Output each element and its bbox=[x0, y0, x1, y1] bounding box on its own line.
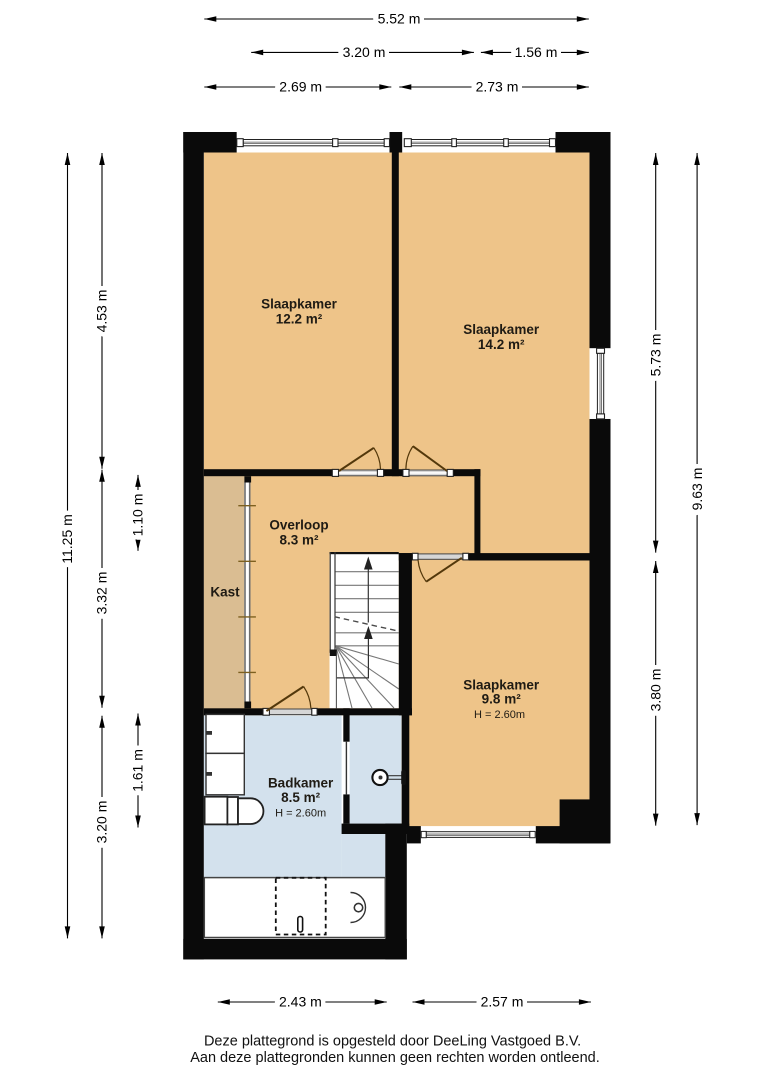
svg-text:9.8 m²: 9.8 m² bbox=[482, 691, 522, 706]
svg-text:3.32 m: 3.32 m bbox=[94, 572, 110, 615]
svg-text:H = 2.60m: H = 2.60m bbox=[474, 709, 525, 721]
svg-text:H = 2.60m: H = 2.60m bbox=[275, 808, 326, 820]
svg-text:Kast: Kast bbox=[210, 585, 240, 600]
svg-text:1.56 m: 1.56 m bbox=[515, 44, 558, 60]
svg-text:12.2 m²: 12.2 m² bbox=[276, 312, 323, 327]
svg-text:Badkamer: Badkamer bbox=[268, 775, 334, 790]
svg-text:14.2 m²: 14.2 m² bbox=[478, 337, 525, 352]
svg-text:8.3 m²: 8.3 m² bbox=[279, 532, 319, 547]
svg-text:4.53 m: 4.53 m bbox=[94, 290, 110, 333]
svg-text:5.73 m: 5.73 m bbox=[647, 334, 663, 377]
svg-text:3.20 m: 3.20 m bbox=[343, 44, 386, 60]
svg-text:Deze plattegrond is opgesteld: Deze plattegrond is opgesteld door DeeLi… bbox=[204, 1034, 581, 1050]
svg-text:Slaapkamer: Slaapkamer bbox=[261, 297, 338, 312]
svg-text:11.25 m: 11.25 m bbox=[59, 514, 75, 564]
svg-text:3.20 m: 3.20 m bbox=[94, 801, 110, 844]
svg-text:2.57 m: 2.57 m bbox=[481, 994, 524, 1010]
svg-text:3.80 m: 3.80 m bbox=[647, 669, 663, 712]
svg-text:2.43 m: 2.43 m bbox=[279, 994, 322, 1010]
svg-text:Aan deze plattegronden kunnen: Aan deze plattegronden kunnen geen recht… bbox=[190, 1050, 600, 1066]
svg-text:5.52 m: 5.52 m bbox=[378, 11, 421, 27]
svg-text:9.63 m: 9.63 m bbox=[689, 468, 705, 511]
svg-text:1.10 m: 1.10 m bbox=[130, 494, 146, 537]
svg-text:Overloop: Overloop bbox=[269, 517, 328, 532]
svg-text:1.61 m: 1.61 m bbox=[130, 749, 146, 792]
svg-text:2.69 m: 2.69 m bbox=[279, 79, 322, 95]
svg-text:Slaapkamer: Slaapkamer bbox=[463, 322, 540, 337]
svg-text:8.5 m²: 8.5 m² bbox=[281, 790, 321, 805]
svg-text:2.73 m: 2.73 m bbox=[476, 79, 519, 95]
